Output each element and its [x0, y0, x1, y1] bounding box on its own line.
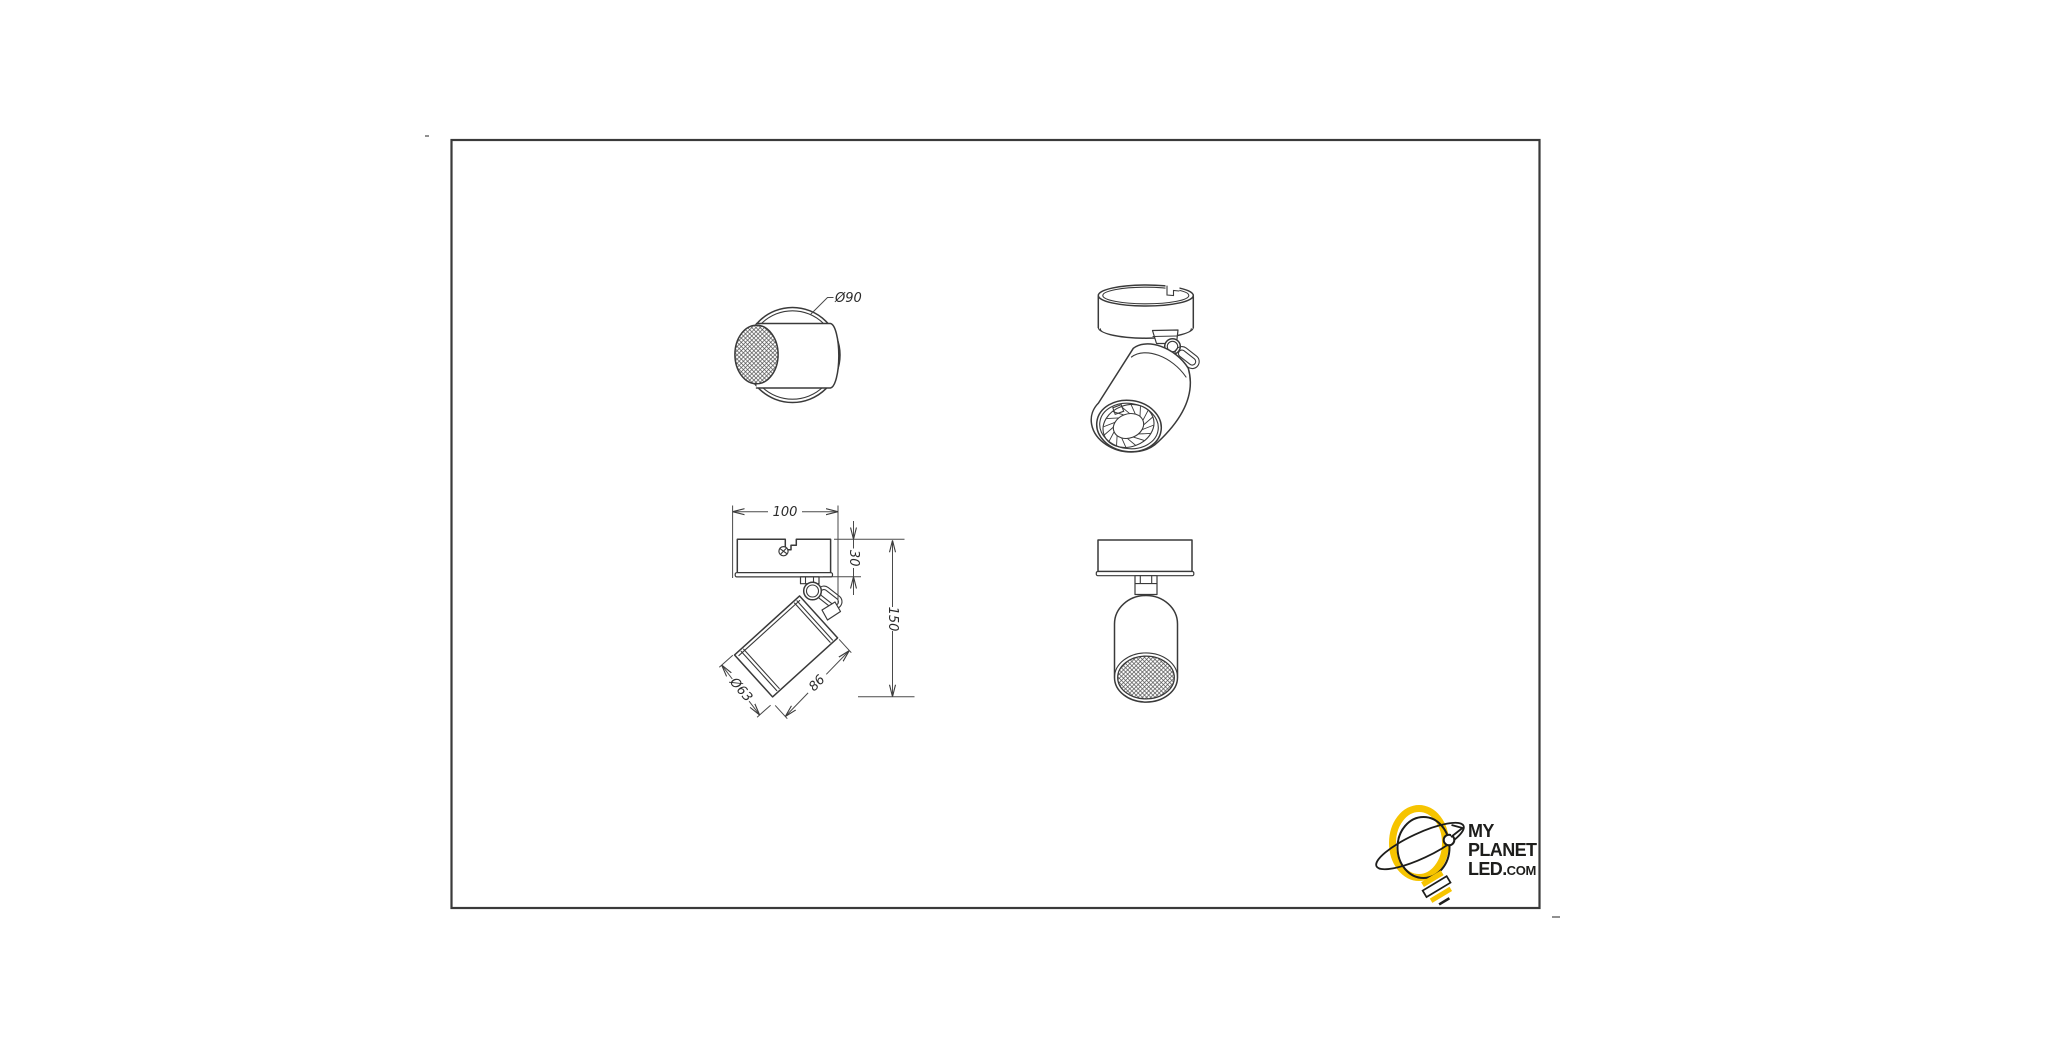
canopy-rim	[735, 573, 832, 577]
canopy-front	[1098, 540, 1192, 572]
view-bottom-of-lamp: Ø90	[735, 291, 862, 403]
spot-lens-hatched	[1118, 656, 1175, 699]
dim-canopy-width: 100	[773, 505, 798, 520]
technical-drawing: Ø90	[0, 0, 2048, 1055]
logo-line-my: MY	[1468, 822, 1536, 841]
dim-head-diameter: Ø63	[726, 674, 756, 705]
pivot-bracket-seam	[1153, 336, 1177, 337]
satellite-flare	[1451, 825, 1463, 837]
dim-overall-height: 150	[885, 607, 900, 632]
dim-head-length: 86	[806, 672, 828, 694]
canopy-front-rim	[1096, 572, 1194, 576]
logo-line-planet: PLANET	[1468, 841, 1536, 860]
spec-sheet-page: Ø90	[0, 0, 2048, 1055]
dim-86-seg2	[826, 651, 849, 675]
view-perspective	[1091, 285, 1202, 456]
dim-63-seg2	[749, 701, 760, 715]
canopy-bottom-rim	[1098, 328, 1193, 339]
dim-63-seg1	[722, 665, 733, 679]
dim-canopy-diameter: Ø90	[834, 291, 862, 306]
view-side-elevation: 100 30 150 Ø63 86	[719, 505, 914, 719]
dim-86-seg1	[785, 693, 808, 717]
orbit-ellipse	[1371, 814, 1469, 877]
view-front-elevation	[1096, 540, 1194, 702]
dimension-lines: 100 30 150 Ø63 86	[719, 505, 914, 719]
dim-canopy-height: 30	[846, 550, 861, 567]
spot-front-face-hatched	[735, 325, 778, 384]
drawing-frame	[452, 140, 1540, 908]
planet-outline	[1398, 817, 1450, 878]
bulb-base-dash	[1438, 897, 1450, 905]
stem	[1135, 576, 1157, 595]
logo-line-led: LED.COM	[1468, 860, 1536, 880]
logo-mark	[1371, 809, 1469, 910]
logo-wordmark: MY PLANET LED.COM	[1468, 822, 1536, 880]
